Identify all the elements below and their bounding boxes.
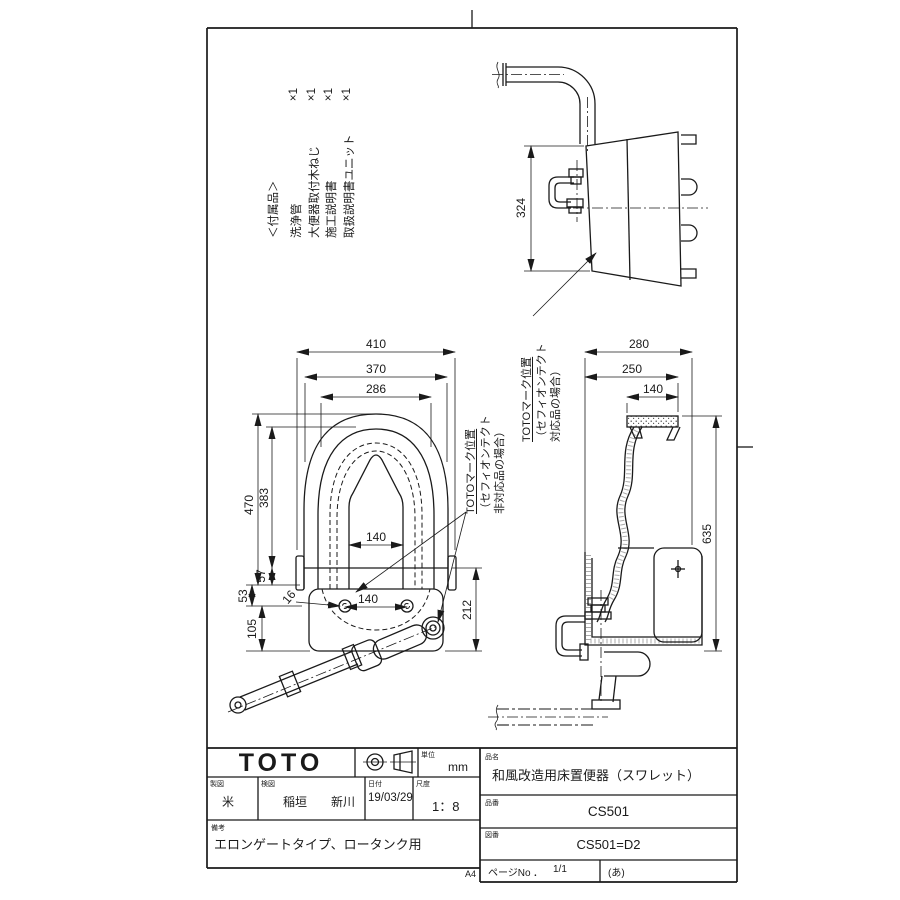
accessory-qty: ×1: [288, 88, 305, 101]
mark-label-line3: 対応品の場合）: [549, 316, 564, 442]
dim-plan-seat-width: 286: [366, 382, 386, 396]
accessories-title: ＜付属品＞: [265, 181, 281, 239]
dim-side-top-depth: 140: [643, 382, 663, 396]
accessory-qty: ×1: [323, 88, 340, 101]
unit-value: mm: [448, 760, 468, 774]
dim-plan-rear-gap: 53: [236, 589, 250, 602]
plan-dimensions: [246, 352, 482, 651]
product-name-value: 和風改造用床置便器（スワレット）: [492, 765, 700, 784]
page-note: (あ): [608, 864, 625, 879]
dim-side-rim-depth: 250: [622, 362, 642, 376]
dim-plan-base-depth: 105: [245, 619, 259, 639]
dim-plan-rim-width: 370: [366, 362, 386, 376]
mark-label-title: TOTOマーク位置: [520, 316, 535, 442]
accessory-item: 洗浄管×1: [288, 88, 305, 238]
page-dot: ．: [533, 864, 543, 879]
dim-plan-seat-depth: 383: [257, 488, 271, 508]
accessory-qty: ×1: [306, 88, 323, 101]
dim-plan-rear-section: 212: [460, 600, 474, 620]
mark-label-line2: （セフィオンテクト: [479, 404, 494, 514]
page-label: ページNo: [488, 864, 531, 879]
mark-label-line2: （セフィオンテクト: [535, 316, 550, 442]
accessory-item: 施工説明書×1: [323, 88, 340, 238]
paper-size: A4: [440, 869, 476, 879]
mark-label-line3: 非対応品の場合）: [493, 404, 508, 514]
accessory-item: 取扱説明書ユニット×1: [341, 88, 358, 238]
drafter-name: 米: [222, 793, 234, 810]
product-number-value: CS501: [480, 804, 737, 819]
dim-plan-bolt-pitch: 140: [358, 592, 378, 606]
dim-plan-overall-width: 410: [366, 337, 386, 351]
plan-view: [228, 414, 456, 713]
accessory-qty: ×1: [341, 88, 358, 101]
product-name-label: 品名: [485, 752, 499, 762]
mark-label-title: TOTOマーク位置: [464, 404, 479, 514]
toto-logo: TOTO: [207, 749, 355, 778]
page-value: 1/1: [553, 864, 567, 875]
dim-plan-hinge-gap: 57: [254, 569, 268, 582]
dim-front-height: 324: [514, 198, 528, 218]
projection-symbol: [363, 751, 416, 773]
drawing-number-value: CS501=D2: [480, 837, 737, 852]
dim-side-height: 635: [700, 524, 714, 544]
dim-plan-overall-depth: 470: [242, 495, 256, 515]
dim-plan-inner-width: 140: [366, 530, 386, 544]
accessory-name: 大便器取付木ねじ: [306, 146, 323, 238]
checker-name-b: 新川: [331, 793, 355, 810]
date-label: 日付: [368, 779, 382, 789]
checker-label: 検図: [261, 779, 275, 789]
unit-label: 単位: [421, 750, 435, 760]
toto-mark-label-compatible: TOTOマーク位置 （セフィオンテクト 対応品の場合）: [520, 316, 564, 442]
date-value: 19/03/29: [368, 792, 413, 804]
drafter-label: 製図: [210, 779, 224, 789]
scale-value: 1：8: [432, 796, 459, 815]
toto-mark-label-incompatible: TOTOマーク位置 （セフィオンテクト 非対応品の場合）: [464, 404, 508, 514]
front-view: [492, 62, 708, 316]
remarks-value: エロンゲートタイプ、ロータンク用: [214, 834, 422, 853]
accessory-name: 洗浄管: [288, 204, 305, 239]
accessory-item: 大便器取付木ねじ×1: [306, 88, 323, 238]
dim-side-overall-depth: 280: [629, 337, 649, 351]
accessory-name: 施工説明書: [323, 181, 340, 239]
accessory-name: 取扱説明書ユニット: [341, 135, 358, 239]
checker-name-a: 稲垣: [283, 793, 307, 810]
scale-label: 尺度: [416, 779, 430, 789]
drawing-sheet: { "accessories": { "title": "＜付属品＞", "it…: [0, 0, 900, 900]
remarks-label: 備考: [211, 823, 225, 833]
